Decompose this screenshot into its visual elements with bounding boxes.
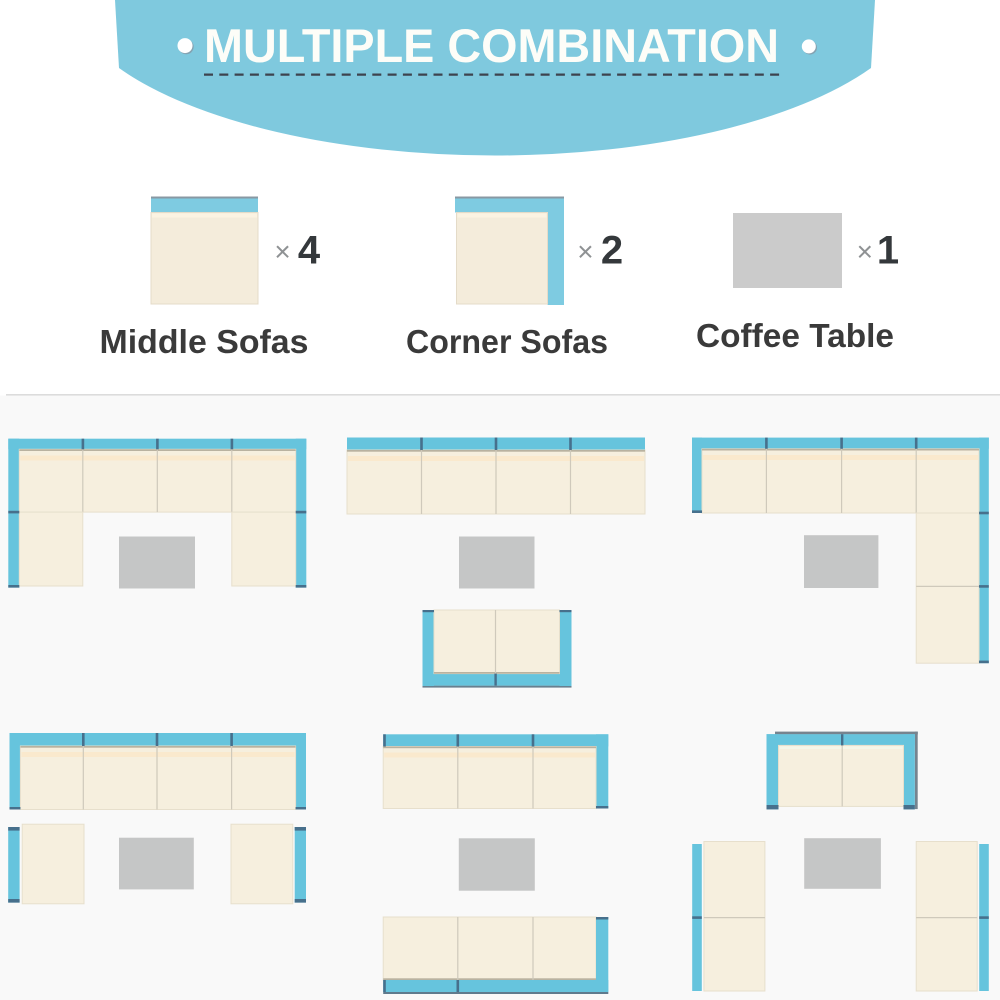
svg-text:Corner Sofas: Corner Sofas (406, 323, 608, 360)
svg-text:×: × (274, 236, 290, 267)
svg-text:MULTIPLE COMBINATION: MULTIPLE COMBINATION (204, 19, 779, 72)
svg-text:Coffee Table: Coffee Table (696, 317, 894, 354)
svg-text:Middle Sofas: Middle Sofas (100, 323, 309, 360)
svg-text:×: × (857, 236, 873, 267)
svg-text:2: 2 (601, 229, 623, 273)
svg-text:4: 4 (298, 229, 321, 273)
svg-text:1: 1 (877, 229, 899, 273)
svg-text:×: × (577, 236, 593, 267)
